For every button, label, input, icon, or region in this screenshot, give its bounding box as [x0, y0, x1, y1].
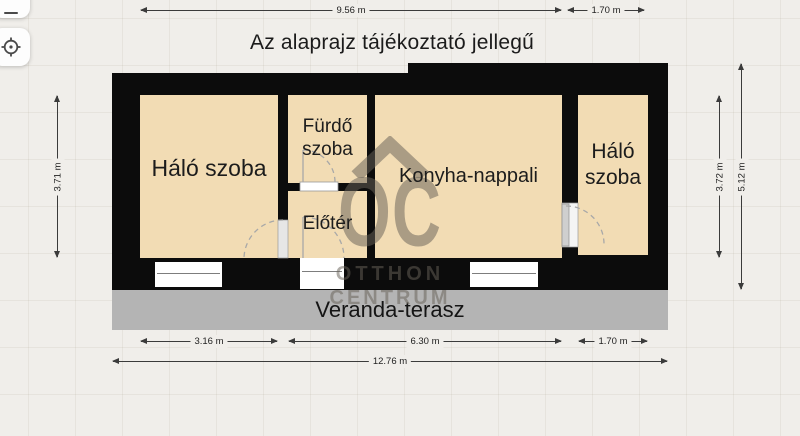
window-sill	[157, 273, 220, 274]
door-threshold	[302, 271, 342, 272]
locate-button[interactable]	[0, 28, 30, 66]
target-icon	[0, 36, 22, 58]
window-kitchen	[470, 262, 538, 287]
dimension-right-outer: 5.12 m	[735, 63, 749, 290]
dimension-right-inner: 3.72 m	[713, 95, 727, 258]
label-bedroom-left: Háló szoba	[140, 155, 278, 182]
label-bathroom: Fürdő szoba	[288, 115, 367, 161]
dimension-bottom-bedroom-right: 1.70 m	[578, 335, 648, 349]
floorplan-viewer: Az alaprajz tájékoztató jellegű Veranda-…	[0, 0, 800, 436]
veranda-label: Veranda-terasz	[315, 297, 464, 323]
dimension-top-main: 9.56 m	[140, 4, 562, 18]
label-kitchen-living: Konyha-nappali	[375, 165, 562, 188]
label-foyer: Előtér	[288, 213, 367, 235]
dimension-left-height: 3.71 m	[51, 95, 65, 258]
label-bedroom-right: Háló szoba	[578, 139, 648, 191]
entrance-door-opening	[300, 258, 344, 289]
dimension-bottom-bedroom-left: 3.16 m	[140, 335, 278, 349]
dimension-total-width: 12.76 m	[112, 355, 668, 369]
zoom-out-button[interactable]	[0, 0, 30, 18]
page-title: Az alaprajz tájékoztató jellegű	[92, 31, 692, 55]
window-sill	[472, 273, 536, 274]
window-bedroom-left	[155, 262, 222, 287]
dimension-top-right: 1.70 m	[567, 4, 645, 18]
minus-icon	[4, 12, 18, 15]
room-veranda: Veranda-terasz	[112, 290, 668, 330]
dimension-bottom-middle: 6.30 m	[288, 335, 562, 349]
